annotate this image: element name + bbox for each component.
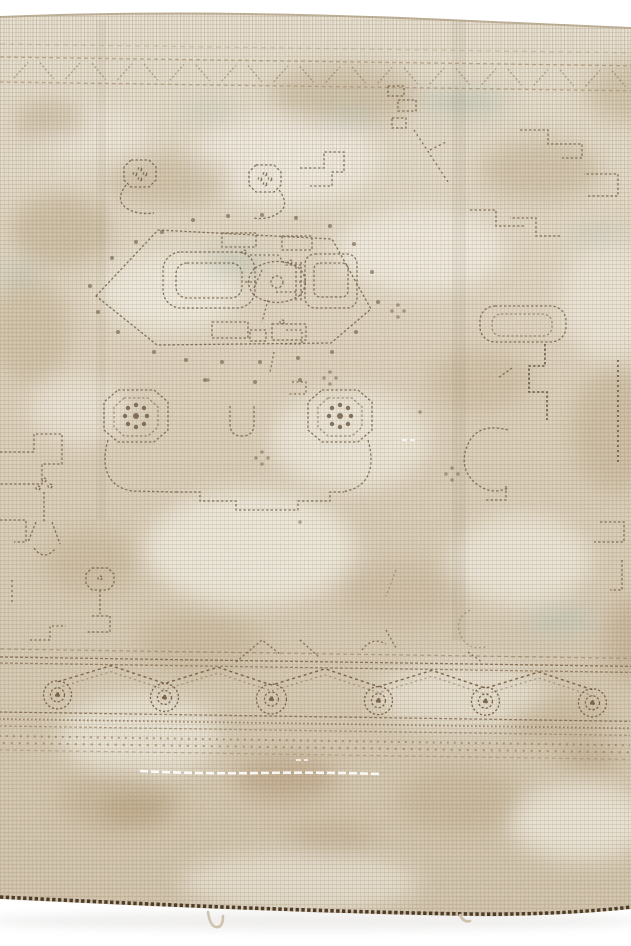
fabric-grain-light: [0, 0, 631, 946]
vertical-crease: [96, 20, 106, 520]
rosette-lower-right: [327, 403, 353, 429]
rug-photo-svg: [0, 0, 631, 946]
rug: [0, 0, 631, 946]
vertical-crease: [452, 20, 466, 640]
rosette-lower-left: [123, 403, 149, 429]
photo-canvas: [0, 0, 631, 946]
